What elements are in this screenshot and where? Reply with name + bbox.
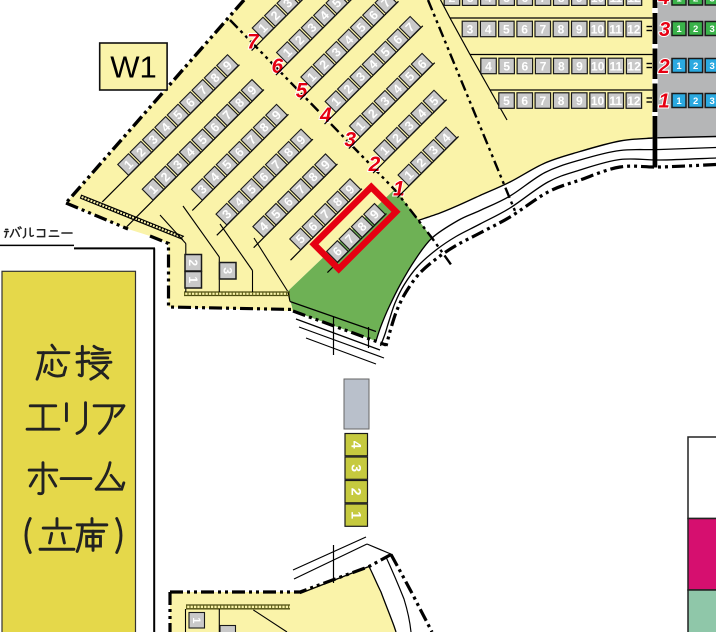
svg-text:W1: W1: [110, 50, 157, 85]
svg-text:4: 4: [485, 0, 492, 5]
svg-text:6: 6: [271, 55, 283, 78]
svg-text:3: 3: [710, 0, 715, 5]
svg-text:2: 2: [657, 56, 669, 78]
svg-text:5: 5: [503, 22, 510, 36]
svg-text:8: 8: [558, 59, 565, 73]
svg-text:5: 5: [296, 80, 308, 103]
svg-text:1: 1: [676, 61, 682, 72]
svg-text:8: 8: [558, 22, 565, 36]
svg-text:9: 9: [576, 94, 583, 108]
svg-text:7: 7: [540, 0, 547, 5]
svg-text:9: 9: [576, 0, 583, 5]
svg-text:1: 1: [658, 91, 669, 113]
svg-text:8: 8: [558, 94, 565, 108]
svg-text:3: 3: [348, 464, 364, 472]
svg-text:3: 3: [659, 19, 670, 41]
svg-text:2: 2: [693, 24, 698, 35]
svg-text:9: 9: [576, 22, 583, 36]
svg-text:1: 1: [190, 617, 202, 623]
svg-text:6: 6: [521, 94, 528, 108]
svg-text:2: 2: [348, 488, 364, 496]
svg-text:11: 11: [609, 0, 622, 5]
svg-text:1: 1: [348, 511, 364, 519]
svg-text:2: 2: [693, 0, 698, 5]
svg-text:3: 3: [221, 267, 235, 274]
svg-text:6: 6: [521, 0, 528, 5]
svg-text:7: 7: [540, 94, 547, 108]
svg-text:1: 1: [393, 178, 405, 201]
svg-text:2: 2: [693, 96, 698, 107]
svg-text:10: 10: [591, 94, 605, 108]
svg-text:12: 12: [627, 22, 641, 36]
svg-text:9: 9: [576, 59, 583, 73]
svg-text:3: 3: [710, 96, 715, 107]
svg-text:4: 4: [485, 59, 492, 73]
svg-text:1: 1: [676, 0, 682, 5]
svg-text:2: 2: [186, 259, 200, 266]
svg-text:11: 11: [610, 59, 623, 73]
svg-text:1: 1: [676, 96, 682, 107]
svg-text:3: 3: [467, 0, 474, 5]
svg-text:10: 10: [591, 59, 605, 73]
svg-text:2: 2: [693, 61, 698, 72]
svg-text:11: 11: [609, 94, 622, 108]
svg-text:10: 10: [591, 0, 605, 5]
svg-text:3: 3: [710, 24, 715, 35]
svg-text:12: 12: [627, 94, 641, 108]
svg-text:2: 2: [449, 0, 456, 5]
svg-text:3: 3: [467, 22, 474, 36]
svg-text:5: 5: [503, 94, 510, 108]
svg-text:7: 7: [540, 59, 547, 73]
svg-text:3: 3: [344, 129, 356, 152]
svg-text:11: 11: [609, 22, 622, 36]
svg-text:8: 8: [558, 0, 565, 5]
svg-text:12: 12: [627, 0, 641, 5]
svg-text:1: 1: [676, 24, 682, 35]
svg-text:1: 1: [186, 276, 200, 283]
svg-text:7: 7: [539, 22, 546, 36]
svg-text:3: 3: [710, 61, 715, 72]
svg-text:12: 12: [627, 59, 641, 73]
svg-text:6: 6: [521, 22, 528, 36]
svg-text:5: 5: [503, 59, 510, 73]
svg-text:4: 4: [485, 22, 492, 36]
svg-text:10: 10: [591, 22, 605, 36]
svg-text:4: 4: [348, 441, 364, 449]
svg-text:6: 6: [522, 59, 529, 73]
svg-text:5: 5: [503, 0, 510, 5]
svg-text:4: 4: [657, 0, 669, 9]
